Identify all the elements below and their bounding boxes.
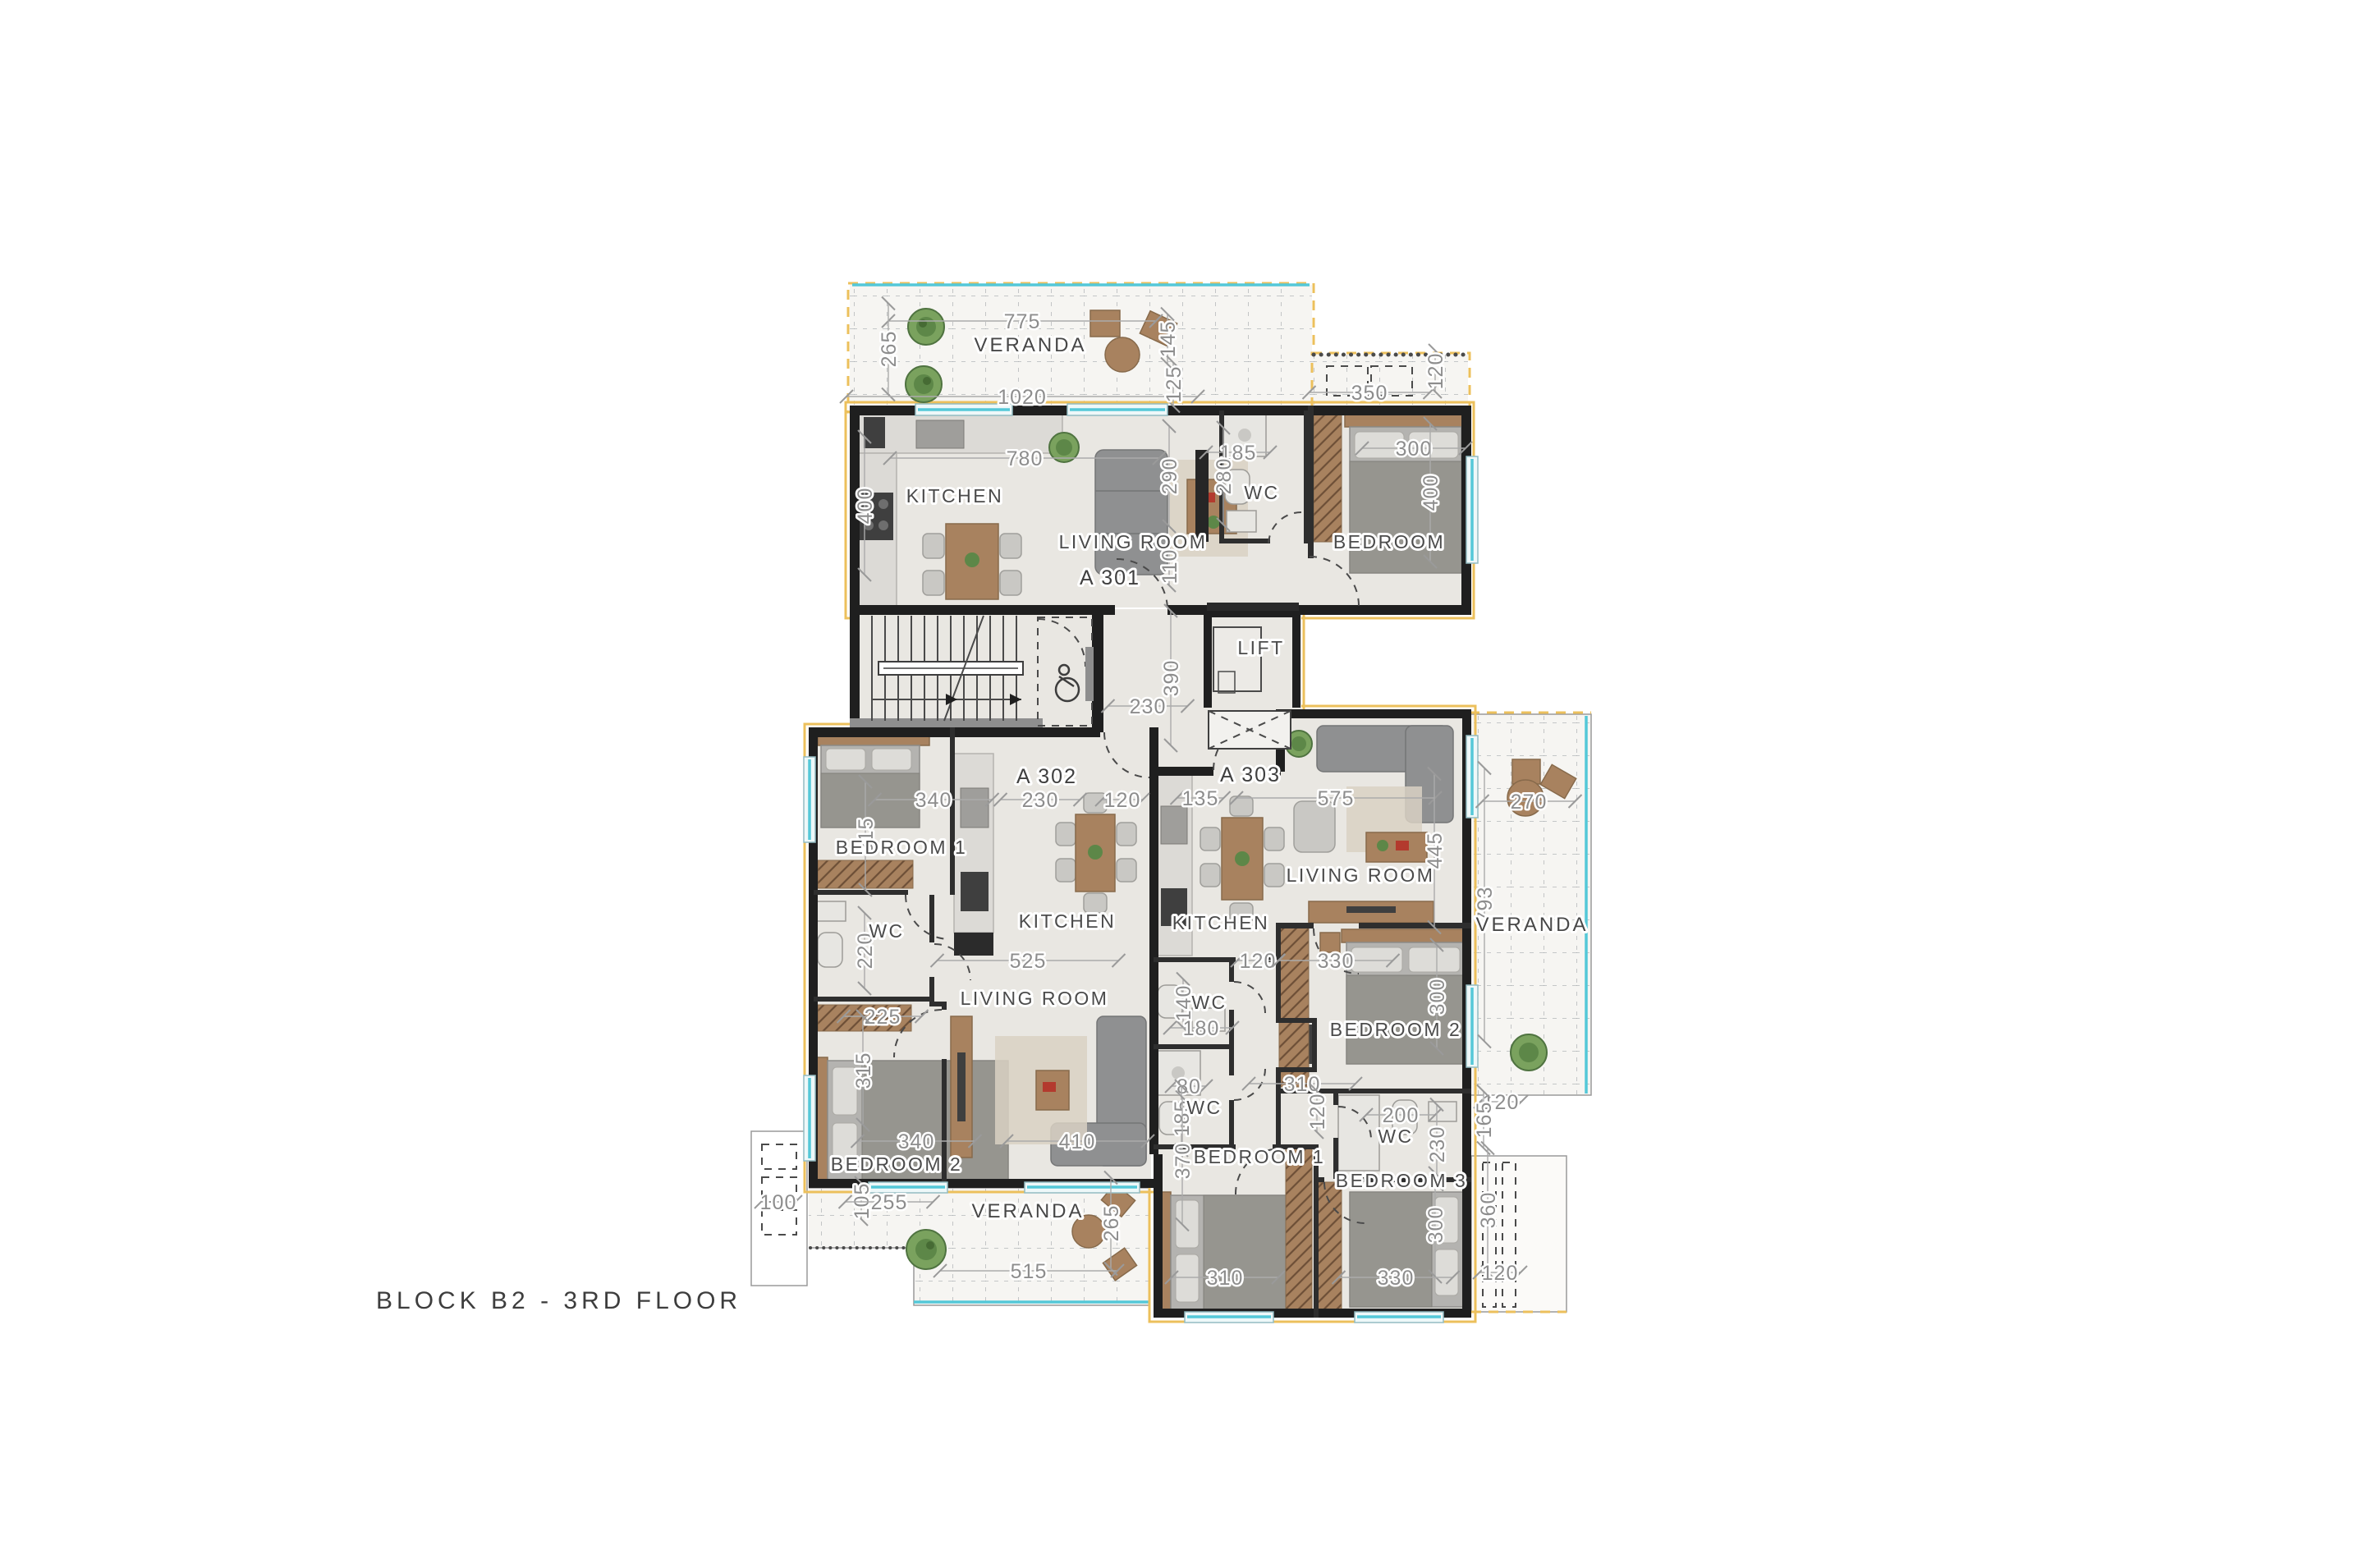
a303-wardrobe-b1: [1286, 1148, 1312, 1316]
room-label: BEDROOM 2: [1330, 1019, 1462, 1040]
room-label: KITCHEN: [1019, 910, 1116, 932]
dimension-value: 310: [1207, 1267, 1244, 1290]
plan-title: BLOCK B2 - 3RD FLOOR: [376, 1287, 741, 1315]
room-label: LIFT: [1237, 637, 1284, 658]
dimension-value: 120: [1424, 353, 1447, 390]
room-label: KITCHEN: [1172, 912, 1269, 933]
dimension-value: 300: [1426, 979, 1449, 1016]
room-label: WC: [1191, 992, 1227, 1013]
dimension-value: 330: [1378, 1267, 1415, 1290]
dimension-value: 180: [1183, 1017, 1220, 1040]
dimension-value: 120: [1306, 1093, 1329, 1130]
pergola-bottom-right: [1471, 1156, 1567, 1312]
window: [804, 1075, 815, 1161]
shaft-x: [1209, 711, 1291, 749]
dimension-value: 135: [1182, 787, 1219, 810]
a303-bed1: [1158, 1192, 1286, 1315]
dimension-value: 350: [1351, 382, 1388, 405]
dimension-value: 145: [1157, 321, 1180, 358]
floor-plan-page: 7752651020145125350120780400290110185280…: [0, 0, 2367, 1568]
dimension-value: 265: [1100, 1205, 1123, 1242]
window: [1355, 1312, 1443, 1323]
plant: [906, 1230, 946, 1269]
room-label: WC: [1186, 1097, 1222, 1118]
dimension-value: 340: [898, 1130, 935, 1153]
dimension-value: 330: [1318, 950, 1355, 973]
dimension: 120: [1424, 344, 1447, 398]
dimension-value: 200: [1383, 1104, 1420, 1127]
dimension-value: 400: [1420, 475, 1443, 511]
window: [1185, 1312, 1273, 1323]
room-label: BEDROOM 3: [1336, 1170, 1468, 1191]
room-label: LIVING ROOM: [1059, 531, 1208, 552]
dimension-value: 390: [1160, 660, 1183, 697]
apartment-label: A 303: [1220, 763, 1281, 786]
dimension-value: 300: [1424, 1207, 1447, 1244]
room-label: WC: [1378, 1126, 1413, 1147]
dimension-value: 100: [760, 1191, 797, 1214]
dimension-value: 775: [1004, 310, 1041, 333]
dimension-value: 120: [1104, 789, 1141, 812]
room-label: VERANDA: [974, 334, 1086, 356]
apartment-label: A 302: [1016, 765, 1077, 788]
room-label: WC: [869, 920, 904, 942]
dimension-value: 400: [854, 488, 877, 525]
window: [1025, 1182, 1140, 1193]
window: [1466, 985, 1478, 1067]
dimension-value: 445: [1424, 832, 1447, 869]
dimension-value: 360: [1477, 1192, 1500, 1229]
dimension-value: 165: [1473, 1102, 1496, 1139]
dimension-value: 225: [865, 1006, 901, 1029]
dimension-value: 575: [1318, 787, 1355, 810]
dimension-value: 780: [1007, 447, 1044, 470]
dimension-value: 120: [1240, 950, 1277, 973]
window: [1466, 736, 1478, 818]
plant: [1511, 1034, 1547, 1071]
a303-wardrobe-b2: [1279, 928, 1309, 1087]
dimension-value: 280: [1213, 458, 1236, 495]
room-label: WC: [1244, 482, 1279, 503]
dimension-value: 525: [1010, 950, 1047, 973]
room-label: LIVING ROOM: [1287, 864, 1435, 886]
room-label: BEDROOM 2: [831, 1153, 963, 1175]
room-label: BEDROOM: [1333, 531, 1445, 552]
window: [804, 757, 815, 842]
dimension-value: 515: [1011, 1260, 1048, 1283]
dimension-value: 290: [1158, 458, 1181, 495]
dimension-value: 1020: [998, 386, 1047, 409]
dimension-value: 125: [1163, 366, 1186, 403]
room-label: KITCHEN: [906, 485, 1003, 507]
a303-bed3: [1350, 1192, 1465, 1307]
window: [1067, 404, 1167, 415]
a303-tv-bench: [1309, 901, 1434, 923]
a302-tv-unit: [951, 1016, 972, 1158]
dimension: 100: [755, 1191, 802, 1214]
plant: [908, 309, 944, 345]
room-label: BEDROOM 1: [1194, 1146, 1326, 1167]
room-label: VERANDA: [971, 1200, 1084, 1222]
room-label: BEDROOM 1: [836, 837, 968, 858]
dimension-value: 340: [915, 789, 952, 812]
floor-plan-svg: 7752651020145125350120780400290110185280…: [0, 0, 2367, 1568]
window: [1466, 456, 1478, 563]
apartment-label: A 301: [1080, 566, 1140, 589]
dimension-value: 410: [1059, 1130, 1096, 1153]
room-label: LIVING ROOM: [961, 988, 1109, 1009]
dimension-value: 315: [852, 1052, 875, 1089]
room-label: VERANDA: [1475, 914, 1588, 936]
dimension-value: 230: [1022, 789, 1059, 812]
dimension-value: 255: [871, 1191, 908, 1214]
dimension-value: 230: [1130, 695, 1167, 718]
a301-wardrobe: [1314, 410, 1342, 542]
dimension-value: 310: [1284, 1073, 1321, 1096]
dimension-value: 265: [878, 331, 901, 368]
dimension-value: 370: [1172, 1143, 1195, 1180]
dimension-value: 270: [1511, 791, 1548, 814]
dimension-value: 230: [1426, 1126, 1449, 1163]
dimension-value: 110: [1158, 549, 1181, 585]
dimension-value: 300: [1396, 438, 1433, 461]
dimension-value: 120: [1482, 1262, 1519, 1285]
a302-bed1: [818, 731, 929, 828]
